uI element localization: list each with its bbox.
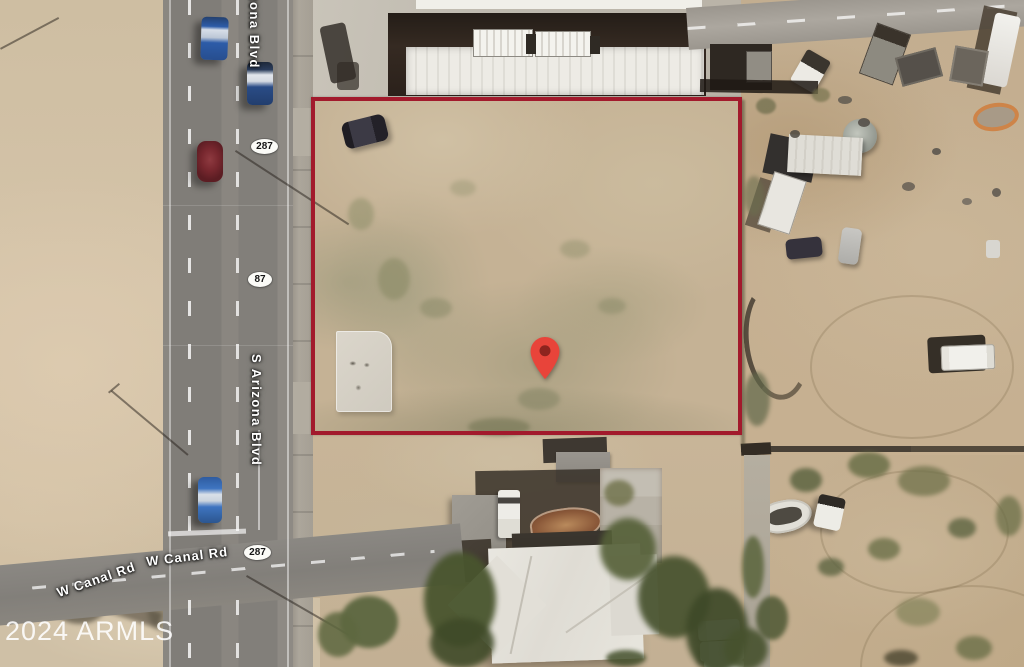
road-seam bbox=[163, 345, 293, 346]
vegetation-patch bbox=[858, 118, 870, 127]
route-shield-87: 87 bbox=[248, 272, 272, 287]
mobile-home-roof bbox=[787, 134, 863, 176]
watermark: 2024 ARMLS bbox=[5, 616, 174, 647]
vegetation-patch bbox=[948, 518, 976, 538]
vegetation-patch bbox=[848, 452, 890, 478]
vegetation-patch bbox=[838, 96, 852, 104]
route-shield-287-bottom: 287 bbox=[244, 545, 271, 560]
driveway-apron bbox=[293, 108, 313, 156]
lane-marking bbox=[287, 0, 289, 667]
lane-marking bbox=[188, 600, 191, 667]
lane-marking bbox=[188, 0, 191, 533]
vegetation-patch bbox=[604, 480, 634, 506]
location-pin-icon bbox=[529, 337, 561, 379]
lane-marking bbox=[236, 600, 239, 667]
vegetation-patch bbox=[956, 636, 992, 660]
red-car bbox=[197, 141, 223, 182]
vegetation-patch bbox=[790, 468, 822, 492]
small-white-car bbox=[986, 240, 1000, 258]
blue-car bbox=[198, 477, 222, 523]
street-label-arizona-blvd-top: zona Blvd bbox=[247, 0, 262, 69]
vegetation-patch bbox=[606, 650, 646, 666]
vegetation-patch bbox=[430, 618, 494, 667]
lane-marking bbox=[236, 0, 239, 533]
truck-trailer bbox=[474, 30, 532, 56]
flatbed-trailer bbox=[949, 45, 989, 86]
ground-shadow bbox=[700, 79, 818, 94]
vegetation-patch bbox=[898, 466, 950, 496]
vegetation-patch bbox=[992, 188, 1001, 197]
vegetation-patch bbox=[756, 596, 788, 640]
parked-dark-vehicle bbox=[337, 62, 359, 90]
vegetation-patch bbox=[884, 650, 918, 666]
property-boundary bbox=[311, 97, 742, 435]
fence-line bbox=[741, 446, 1024, 452]
storage-container-roof bbox=[746, 51, 772, 83]
vegetation-patch bbox=[868, 538, 900, 560]
street-label-arizona-blvd-mid: S Arizona Blvd bbox=[249, 354, 264, 466]
blue-pickup-truck bbox=[200, 17, 228, 61]
driveway-apron bbox=[293, 382, 313, 434]
dark-car bbox=[785, 236, 823, 260]
vegetation-patch bbox=[742, 536, 764, 598]
aerial-satellite-map: zona BlvdS Arizona BlvdW Canal RdW Canal… bbox=[0, 0, 1024, 667]
lane-marking bbox=[687, 3, 1024, 30]
lane-marking bbox=[169, 0, 171, 667]
warehouse-roof-top-strip bbox=[416, 0, 702, 9]
white-truck bbox=[498, 490, 520, 538]
vegetation-patch bbox=[744, 372, 770, 426]
vegetation-patch bbox=[962, 198, 972, 205]
vegetation-patch bbox=[902, 182, 915, 191]
truck-cab bbox=[590, 36, 600, 54]
route-shield-287-top: 287 bbox=[251, 139, 278, 154]
fence-corner-debris bbox=[741, 442, 772, 456]
truck-trailer bbox=[536, 32, 590, 56]
vegetation-patch bbox=[756, 98, 776, 114]
vegetation-patch bbox=[318, 612, 358, 657]
truck-cab bbox=[526, 34, 536, 54]
vegetation-patch bbox=[790, 130, 800, 138]
vegetation-patch bbox=[996, 496, 1022, 536]
vegetation-patch bbox=[818, 558, 844, 576]
road-seam bbox=[163, 205, 293, 206]
vegetation-patch bbox=[932, 148, 941, 155]
tire-tracks bbox=[810, 295, 1014, 439]
vegetation-patch bbox=[744, 176, 764, 216]
vegetation-patch bbox=[812, 88, 830, 102]
vegetation-patch bbox=[896, 598, 940, 626]
